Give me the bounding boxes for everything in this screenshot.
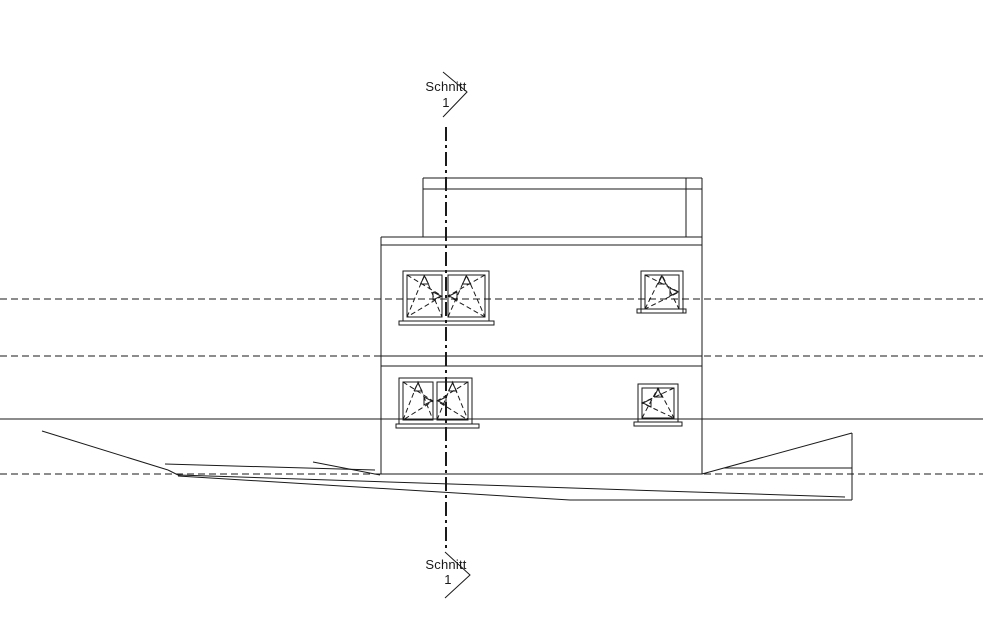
section-cut-line	[443, 72, 470, 598]
building-outline	[381, 178, 702, 474]
elevation-canvas: Schnitt 1 Schnitt 1	[0, 0, 983, 633]
section-number-bottom: 1	[444, 573, 451, 587]
window-upper-right	[637, 271, 686, 313]
window-lower-left-double	[396, 378, 479, 428]
section-label-bottom: Schnitt	[425, 558, 466, 572]
section-label-top: Schnitt	[425, 80, 466, 94]
window-lower-right	[634, 384, 682, 426]
section-number-top: 1	[442, 96, 449, 110]
elevation-drawing	[0, 0, 983, 633]
